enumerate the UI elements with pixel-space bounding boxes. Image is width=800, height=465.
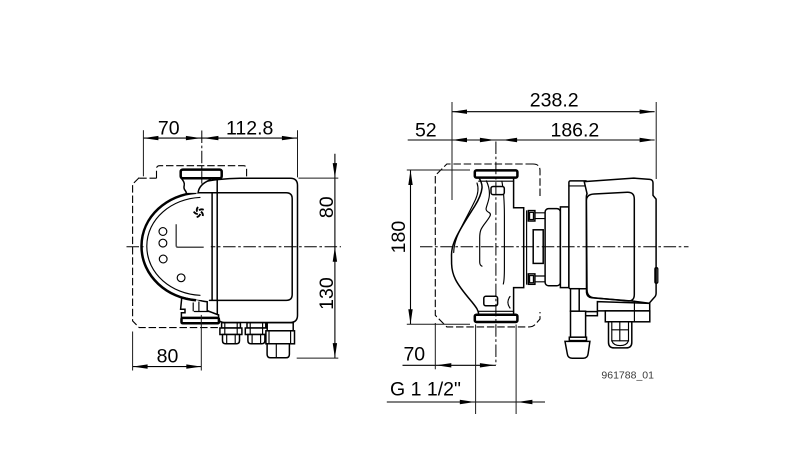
svg-text:G 1 1/2": G 1 1/2" <box>390 378 461 400</box>
svg-text:180: 180 <box>388 221 410 254</box>
svg-text:186.2: 186.2 <box>550 120 599 142</box>
svg-text:80: 80 <box>316 196 338 218</box>
svg-text:112.8: 112.8 <box>226 118 273 140</box>
svg-text:961788_01: 961788_01 <box>601 370 654 382</box>
svg-text:130: 130 <box>316 277 338 310</box>
svg-text:80: 80 <box>157 345 179 367</box>
svg-text:70: 70 <box>403 343 425 365</box>
svg-text:70: 70 <box>158 118 180 140</box>
svg-text:52: 52 <box>415 120 437 142</box>
svg-text:238.2: 238.2 <box>530 89 579 111</box>
